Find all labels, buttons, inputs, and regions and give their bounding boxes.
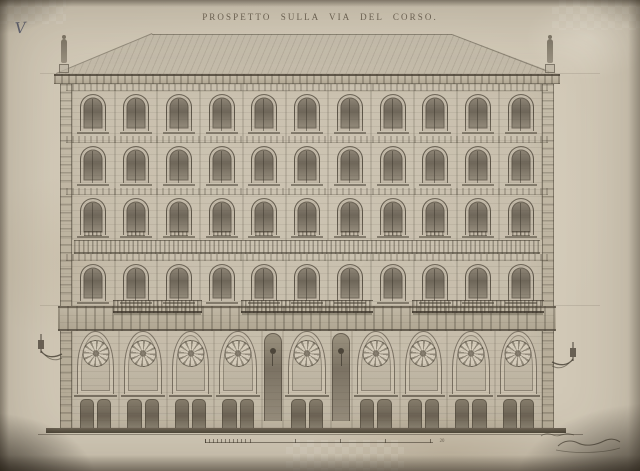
window-balustrade (213, 231, 231, 236)
ground-niche-bay (331, 331, 352, 429)
door-leaf (520, 399, 534, 429)
arched-window (422, 94, 448, 131)
window-balustrade (170, 231, 188, 236)
window-bay (72, 254, 115, 306)
window-bay (414, 84, 457, 136)
arched-window (123, 94, 149, 131)
arched-window (508, 264, 534, 301)
arched-window (166, 146, 192, 183)
window-bay (414, 136, 457, 188)
upper-floors (72, 84, 542, 306)
window-bay (72, 188, 115, 240)
window-bay (115, 188, 158, 240)
statue-figure-icon (61, 39, 67, 63)
arched-window (465, 264, 491, 301)
arched-window (80, 198, 106, 235)
door-leaf (360, 399, 374, 429)
window-bay (499, 254, 542, 306)
street-ground-line (38, 434, 583, 435)
door-leaf (80, 399, 94, 429)
door-leaf (222, 399, 236, 429)
niche-lamp-icon (338, 348, 344, 354)
door-leaf (377, 399, 391, 429)
arched-window (209, 264, 235, 301)
window-bay (371, 254, 414, 306)
window-bay (286, 84, 329, 136)
window-bay (371, 136, 414, 188)
window-bay (371, 84, 414, 136)
arched-window (380, 146, 406, 183)
arched-window (337, 264, 363, 301)
bracketed-balcony (412, 300, 544, 313)
window-bay (200, 84, 243, 136)
rosette-oculus-window (362, 340, 389, 367)
arched-window (123, 264, 149, 301)
niche-arch (332, 333, 350, 421)
door-pair (448, 397, 493, 429)
arched-window (465, 94, 491, 131)
drawing-title: PROSPETTO SULLA VIA DEL CORSO. (0, 12, 640, 22)
window-balustrade (127, 231, 145, 236)
window-bay (328, 254, 371, 306)
door-leaf (472, 399, 486, 429)
rosette-oculus-window (457, 340, 484, 367)
ground-arch-bay (447, 331, 494, 429)
arched-window (380, 94, 406, 131)
door-leaf (145, 399, 159, 429)
rosette-oculus-window (82, 340, 109, 367)
bracketed-balcony (113, 300, 202, 313)
window-bay (499, 84, 542, 136)
window-bay (328, 84, 371, 136)
arched-window (251, 198, 277, 235)
window-bay (200, 254, 243, 306)
ground-arch-bay (214, 331, 261, 429)
arched-window (380, 264, 406, 301)
arched-window (294, 94, 320, 131)
arched-window (508, 94, 534, 131)
window-balustrade (384, 231, 402, 236)
arched-window (166, 264, 192, 301)
sheet-number: V (14, 19, 26, 38)
door-leaf (425, 399, 439, 429)
hipped-roof (56, 34, 558, 74)
architect-signature (538, 429, 634, 455)
arched-window (251, 94, 277, 131)
rosette-oculus-window (130, 340, 157, 367)
ground-arch-bay (352, 331, 399, 429)
rosette-oculus-window (410, 340, 437, 367)
arched-window (337, 146, 363, 183)
arched-window (123, 146, 149, 183)
window-balustrade (84, 231, 102, 236)
window-bay (499, 188, 542, 240)
ground-arch (77, 331, 114, 394)
arched-window (80, 94, 106, 131)
door-pair (215, 397, 260, 429)
window-bay (243, 136, 286, 188)
arched-window (294, 198, 320, 235)
main-cornice (54, 74, 560, 84)
upper-floor-row (72, 254, 542, 306)
window-bay (328, 136, 371, 188)
arched-window (251, 146, 277, 183)
window-bay (286, 254, 329, 306)
ground-arch (452, 331, 489, 394)
window-bay (200, 136, 243, 188)
window-bay (328, 188, 371, 240)
ground-arch (172, 331, 209, 394)
window-balustrade (469, 231, 487, 236)
door-leaf (291, 399, 305, 429)
door-pair (120, 397, 165, 429)
window-bay (286, 188, 329, 240)
roof-ridge-line (152, 34, 452, 35)
window-bay (243, 84, 286, 136)
arched-window (209, 94, 235, 131)
door-leaf (408, 399, 422, 429)
window-bay (371, 188, 414, 240)
arched-window (465, 198, 491, 235)
window-balustrade (426, 231, 444, 236)
ground-arch-bay (400, 331, 447, 429)
scale-bar-end-label: 20 (440, 438, 445, 443)
ground-arch-bay (72, 331, 119, 429)
arched-window (508, 198, 534, 235)
arched-window (337, 94, 363, 131)
wall-lamp-left-icon (28, 332, 64, 376)
door-leaf (127, 399, 141, 429)
window-bay (157, 254, 200, 306)
door-pair (401, 397, 446, 429)
window-bay (243, 254, 286, 306)
window-bay (200, 188, 243, 240)
window-bay (243, 188, 286, 240)
window-bay (157, 188, 200, 240)
scale-bar-tick (295, 439, 296, 443)
door-leaf (455, 399, 469, 429)
bracketed-balcony (241, 300, 373, 313)
window-balustrade (298, 231, 316, 236)
arched-window (80, 264, 106, 301)
arched-window (251, 264, 277, 301)
ground-arch (405, 331, 442, 394)
window-bay (72, 84, 115, 136)
door-leaf (309, 399, 323, 429)
graphic-scale-bar: 20 (205, 438, 433, 450)
window-bay (457, 136, 500, 188)
ground-niche-bay (262, 331, 283, 429)
upper-floor-row (72, 84, 542, 136)
ground-arch-bay (283, 331, 330, 429)
rosette-oculus-window (177, 340, 204, 367)
statue-plinth (59, 64, 69, 73)
ground-arch-bay (167, 331, 214, 429)
ground-arch (288, 331, 325, 394)
scale-bar-tick (205, 439, 206, 443)
door-pair (284, 397, 329, 429)
rosette-oculus-window (225, 340, 252, 367)
niche-arch (264, 333, 282, 421)
window-bay (115, 254, 158, 306)
arched-window (209, 198, 235, 235)
door-leaf (175, 399, 189, 429)
arched-window (294, 264, 320, 301)
roof-statue-left (58, 35, 70, 73)
roof-statue-right (544, 35, 556, 73)
arched-window (380, 198, 406, 235)
arched-window (123, 198, 149, 235)
window-bay (115, 136, 158, 188)
window-bay (286, 136, 329, 188)
window-bay (157, 84, 200, 136)
window-balustrade (255, 231, 273, 236)
upper-floor-row (72, 188, 542, 240)
door-pair (353, 397, 398, 429)
window-bay (115, 84, 158, 136)
door-pair (496, 397, 541, 429)
door-pair (168, 397, 213, 429)
niche-lamp-icon (270, 348, 276, 354)
door-leaf (503, 399, 517, 429)
arched-window (80, 146, 106, 183)
drawing-sheet: PROSPETTO SULLA VIA DEL CORSO. V (0, 0, 640, 471)
window-bay (414, 254, 457, 306)
ground-arch (124, 331, 161, 394)
ground-floor-arcade (72, 331, 542, 429)
door-leaf (97, 399, 111, 429)
window-bay (457, 254, 500, 306)
window-bay (499, 136, 542, 188)
window-bay (457, 84, 500, 136)
arched-window (422, 146, 448, 183)
window-bay (72, 136, 115, 188)
scale-bar-tick (250, 439, 251, 443)
ground-arch-bay (119, 331, 166, 429)
door-pair (73, 397, 118, 429)
building-elevation (62, 34, 552, 434)
window-balustrade (341, 231, 359, 236)
window-bay (414, 188, 457, 240)
continuous-balustrade-gallery (74, 240, 540, 255)
window-bay (457, 188, 500, 240)
wall-lamp-right-icon (550, 340, 586, 384)
arched-window (422, 264, 448, 301)
rosette-oculus-window (294, 340, 321, 367)
scale-bar-tick (340, 439, 341, 443)
arched-window (166, 198, 192, 235)
scale-bar-subdivisions (205, 439, 247, 443)
door-leaf (240, 399, 254, 429)
arched-window (337, 198, 363, 235)
arched-window (294, 146, 320, 183)
door-leaf (192, 399, 206, 429)
arched-window (209, 146, 235, 183)
scale-bar-tick (430, 439, 431, 443)
ground-arch (219, 331, 256, 394)
upper-floor-row (72, 136, 542, 188)
ground-arch (500, 331, 537, 394)
rosette-oculus-window (505, 340, 532, 367)
ground-arch-bay (495, 331, 542, 429)
statue-figure-icon (547, 39, 553, 63)
window-bay (157, 136, 200, 188)
base-plinth (46, 428, 566, 433)
arched-window (508, 146, 534, 183)
statue-plinth (545, 64, 555, 73)
ground-arch (357, 331, 394, 394)
arched-window (166, 94, 192, 131)
scale-bar-tick (385, 439, 386, 443)
arched-window (422, 198, 448, 235)
window-balustrade (512, 231, 530, 236)
arched-window (465, 146, 491, 183)
